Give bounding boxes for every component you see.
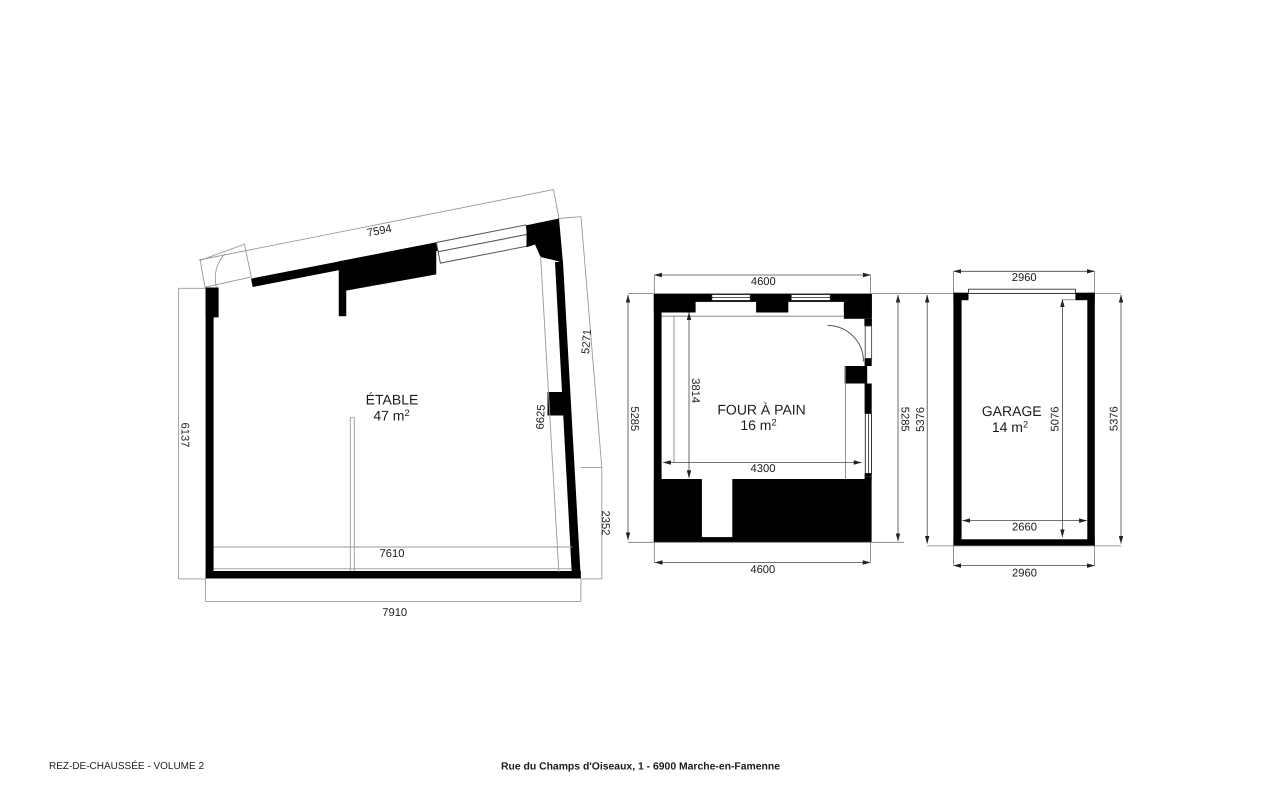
- svg-text:16 m2: 16 m2: [740, 417, 776, 433]
- svg-text:5376: 5376: [1108, 406, 1120, 431]
- svg-text:4600: 4600: [750, 564, 775, 576]
- svg-text:GARAGE: GARAGE: [982, 403, 1042, 419]
- svg-text:2660: 2660: [1012, 522, 1037, 534]
- svg-text:5376: 5376: [915, 407, 927, 432]
- svg-text:FOUR À PAIN: FOUR À PAIN: [717, 401, 805, 417]
- svg-text:REZ-DE-CHAUSSÉE - VOLUME 2: REZ-DE-CHAUSSÉE - VOLUME 2: [49, 760, 204, 772]
- svg-text:2960: 2960: [1012, 272, 1037, 284]
- svg-text:5285: 5285: [899, 407, 911, 432]
- svg-text:47 m2: 47 m2: [373, 407, 409, 423]
- svg-text:6137: 6137: [178, 423, 190, 448]
- svg-text:ÉTABLE: ÉTABLE: [366, 392, 419, 408]
- svg-text:7910: 7910: [382, 607, 407, 619]
- svg-text:5076: 5076: [1050, 407, 1062, 432]
- svg-text:5271: 5271: [580, 329, 594, 355]
- svg-text:2352: 2352: [599, 511, 611, 536]
- svg-text:4600: 4600: [751, 276, 776, 288]
- svg-text:7610: 7610: [380, 548, 405, 560]
- svg-text:4300: 4300: [751, 463, 776, 475]
- svg-text:14 m2: 14 m2: [992, 419, 1028, 435]
- svg-text:6625: 6625: [534, 404, 547, 430]
- svg-text:2960: 2960: [1012, 568, 1037, 580]
- svg-text:5285: 5285: [628, 406, 640, 431]
- svg-text:3814: 3814: [689, 378, 701, 403]
- svg-text:Rue du Champs d'Oiseaux, 1 - 6: Rue du Champs d'Oiseaux, 1 - 6900 Marche…: [501, 762, 780, 773]
